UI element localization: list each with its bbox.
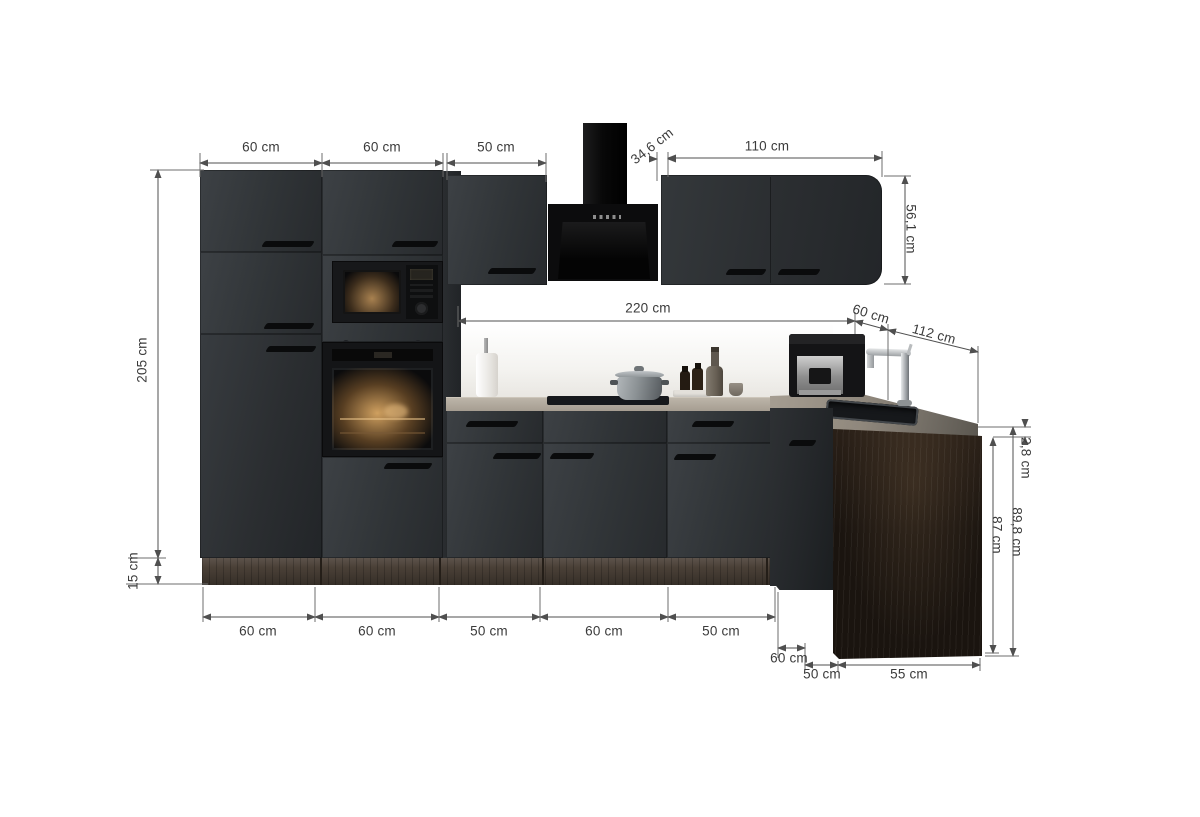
dim-label-total-height: 205 cm bbox=[135, 337, 150, 382]
dim-label-wall-cabinet-right-width: 110 cm bbox=[745, 139, 789, 154]
dim-label-return-unit-2: 55 cm bbox=[890, 667, 928, 682]
dim-label-wall-cabinet-right-height: 56,1 cm bbox=[904, 204, 919, 253]
dim-label-hood-offset: 34,6 cm bbox=[628, 125, 676, 167]
dim-label-worktop-run: 220 cm bbox=[625, 301, 670, 316]
dim-label-worktop-thickness: 2,8 cm bbox=[1019, 437, 1034, 479]
dim-label-wall-cabinet-3: 50 cm bbox=[477, 140, 515, 155]
dim-label-return-unit-1: 50 cm bbox=[803, 667, 841, 682]
dim-label-base-unit-4: 60 cm bbox=[585, 624, 623, 639]
dim-label-base-unit-2: 60 cm bbox=[358, 624, 396, 639]
dim-label-base-unit-5: 50 cm bbox=[702, 624, 740, 639]
dim-label-wall-cabinet-2: 60 cm bbox=[363, 140, 401, 155]
dimension-labels: 60 cm 60 cm 50 cm 34,6 cm 110 cm 56,1 cm… bbox=[0, 0, 1200, 817]
dim-label-base-unit-3: 50 cm bbox=[470, 624, 508, 639]
dim-label-base-unit-1: 60 cm bbox=[239, 624, 277, 639]
kitchen-dimension-diagram: 60 cm 60 cm 50 cm 34,6 cm 110 cm 56,1 cm… bbox=[0, 0, 1200, 817]
dim-label-return-length: 112 cm bbox=[911, 321, 958, 347]
dim-label-corner-unit: 60 cm bbox=[770, 651, 808, 666]
dim-label-wall-cabinet-1: 60 cm bbox=[242, 140, 280, 155]
dim-label-base-height-total: 89,8 cm bbox=[1010, 507, 1025, 556]
dim-label-corner-depth: 60 cm bbox=[851, 301, 892, 326]
dim-label-plinth-height: 15 cm bbox=[126, 552, 141, 590]
dim-label-base-height-carcass: 87 cm bbox=[990, 516, 1005, 554]
